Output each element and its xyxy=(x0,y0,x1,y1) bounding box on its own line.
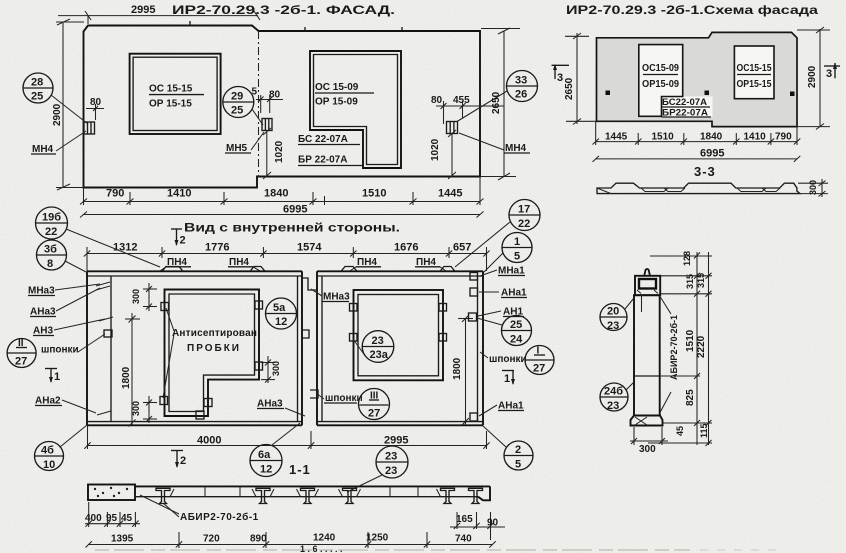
svg-text:27: 27 xyxy=(368,408,380,420)
svg-text:27: 27 xyxy=(533,363,545,375)
svg-text:2: 2 xyxy=(180,455,186,467)
svg-text:790: 790 xyxy=(106,188,124,200)
svg-text:шпонки: шпонки xyxy=(489,354,527,365)
svg-text:3: 3 xyxy=(557,72,563,84)
svg-text:шпонки: шпонки xyxy=(41,345,79,356)
svg-text:БС22-07А: БС22-07А xyxy=(662,97,708,107)
svg-text:2650: 2650 xyxy=(491,91,502,114)
svg-text:5: 5 xyxy=(515,459,521,471)
svg-text:1020: 1020 xyxy=(274,140,285,163)
svg-text:АБИР2-70-2б-1: АБИР2-70-2б-1 xyxy=(669,315,679,380)
svg-text:6а: 6а xyxy=(258,449,271,461)
svg-text:22: 22 xyxy=(45,226,57,238)
svg-text:1445: 1445 xyxy=(438,188,462,200)
svg-text:ОР15-15: ОР15-15 xyxy=(737,79,772,90)
svg-text:23а: 23а xyxy=(370,349,389,361)
svg-text:2220: 2220 xyxy=(696,335,707,358)
svg-text:4б: 4б xyxy=(41,445,54,457)
svg-text:128: 128 xyxy=(682,251,692,266)
svg-text:ОС 15-09: ОС 15-09 xyxy=(315,82,359,93)
svg-text:23: 23 xyxy=(372,335,384,347)
svg-text:1312: 1312 xyxy=(113,242,137,254)
svg-text:1676: 1676 xyxy=(394,242,418,254)
svg-text:165: 165 xyxy=(456,514,473,525)
svg-text:95: 95 xyxy=(106,513,118,524)
svg-text:ОР15-09: ОР15-09 xyxy=(642,79,679,90)
svg-text:3-3: 3-3 xyxy=(694,164,716,179)
svg-text:657: 657 xyxy=(453,242,471,254)
svg-text:1: 1 xyxy=(514,236,520,248)
svg-text:ПРОБКИ: ПРОБКИ xyxy=(187,343,241,354)
svg-text:БР 22-07А: БР 22-07А xyxy=(298,155,347,166)
svg-text:1 . 6 . .: 1 . 6 . . . . . xyxy=(300,544,343,553)
svg-text:5: 5 xyxy=(252,87,258,98)
svg-text:2900: 2900 xyxy=(807,65,818,88)
svg-text:45: 45 xyxy=(675,426,685,436)
svg-text:6995: 6995 xyxy=(700,148,724,160)
svg-text:300: 300 xyxy=(131,289,141,304)
svg-text:3б: 3б xyxy=(44,244,57,256)
svg-text:24б: 24б xyxy=(604,386,623,398)
svg-text:ОС15-15: ОС15-15 xyxy=(737,63,772,74)
svg-text:29: 29 xyxy=(231,91,243,103)
svg-text:5а: 5а xyxy=(273,302,286,314)
svg-text:1776: 1776 xyxy=(205,242,229,254)
svg-text:23: 23 xyxy=(607,400,619,412)
svg-text:45: 45 xyxy=(121,513,133,524)
svg-text:Антисептирован: Антисептирован xyxy=(172,328,257,339)
svg-text:80: 80 xyxy=(431,95,443,106)
svg-text:17: 17 xyxy=(518,204,530,216)
svg-text:300: 300 xyxy=(639,444,656,455)
svg-text:2: 2 xyxy=(180,235,186,247)
svg-text:1395: 1395 xyxy=(111,534,134,545)
svg-text:1020: 1020 xyxy=(430,138,441,161)
svg-text:ИР2-70.29.3 -2б-1.Схема фасада: ИР2-70.29.3 -2б-1.Схема фасада xyxy=(566,3,818,17)
svg-text:ИР2-70.29.3 -2б-1. ФАСАД.: ИР2-70.29.3 -2б-1. ФАСАД. xyxy=(172,3,395,17)
svg-text:315: 315 xyxy=(685,274,695,289)
svg-text:2: 2 xyxy=(515,444,521,456)
svg-text:455: 455 xyxy=(453,95,470,106)
svg-text:1: 1 xyxy=(504,373,510,385)
svg-text:6995: 6995 xyxy=(283,204,307,216)
svg-text:Вид с внутренней стороны.: Вид с внутренней стороны. xyxy=(184,221,400,235)
svg-text:25: 25 xyxy=(31,91,43,103)
svg-text:90: 90 xyxy=(487,518,499,529)
svg-text:23: 23 xyxy=(385,465,397,477)
svg-text:22: 22 xyxy=(518,218,530,230)
svg-text:12: 12 xyxy=(275,316,287,328)
svg-text:26: 26 xyxy=(515,89,527,101)
svg-text:2995: 2995 xyxy=(131,4,155,16)
svg-text:720: 720 xyxy=(203,534,220,545)
svg-text:1410: 1410 xyxy=(167,188,191,200)
svg-text:ОР 15-15: ОР 15-15 xyxy=(149,99,192,110)
svg-text:5: 5 xyxy=(514,251,520,263)
svg-text:300: 300 xyxy=(808,180,818,195)
svg-text:1800: 1800 xyxy=(121,366,132,389)
svg-text:19б: 19б xyxy=(42,212,61,224)
svg-text:825: 825 xyxy=(685,389,696,406)
svg-text:ОС 15-15: ОС 15-15 xyxy=(149,84,193,95)
svg-text:1445: 1445 xyxy=(605,132,628,143)
svg-text:3: 3 xyxy=(826,68,832,80)
svg-text:315: 315 xyxy=(696,273,706,288)
svg-text:740: 740 xyxy=(455,534,472,545)
svg-text:1510: 1510 xyxy=(362,188,386,200)
svg-text:890: 890 xyxy=(250,534,267,545)
svg-text:АБИР2-70-2б-1: АБИР2-70-2б-1 xyxy=(180,511,259,523)
svg-text:8: 8 xyxy=(47,258,53,270)
svg-text:25: 25 xyxy=(510,319,522,331)
svg-text:28: 28 xyxy=(31,77,43,89)
svg-text:400: 400 xyxy=(85,513,102,524)
svg-text:2900: 2900 xyxy=(52,103,63,126)
svg-text:115: 115 xyxy=(699,423,709,438)
svg-text:24: 24 xyxy=(510,334,523,346)
svg-text:1800: 1800 xyxy=(452,357,463,380)
svg-text:ОР 15-09: ОР 15-09 xyxy=(315,97,358,108)
svg-text:1840: 1840 xyxy=(264,188,288,200)
svg-text:25: 25 xyxy=(231,105,243,117)
svg-text:12: 12 xyxy=(260,464,272,476)
svg-text:20: 20 xyxy=(607,306,619,318)
svg-text:1510: 1510 xyxy=(652,132,675,143)
svg-text:300: 300 xyxy=(271,361,281,376)
svg-text:27: 27 xyxy=(15,356,27,368)
svg-text:1574: 1574 xyxy=(297,242,322,254)
svg-text:1250: 1250 xyxy=(366,533,389,544)
svg-text:1410: 1410 xyxy=(744,132,767,143)
svg-text:790: 790 xyxy=(775,132,792,143)
svg-text:1840: 1840 xyxy=(700,132,723,143)
svg-text:23: 23 xyxy=(607,320,619,332)
svg-text:2995: 2995 xyxy=(384,435,408,447)
svg-text:1240: 1240 xyxy=(313,533,336,544)
svg-text:БР22-07А: БР22-07А xyxy=(662,108,709,118)
svg-text:1-1: 1-1 xyxy=(289,462,311,477)
svg-text:ОС15-09: ОС15-09 xyxy=(642,63,679,74)
svg-text:4000: 4000 xyxy=(197,435,221,447)
svg-text:2650: 2650 xyxy=(564,77,575,100)
svg-text:23: 23 xyxy=(385,451,397,463)
svg-text:БС 22-07А: БС 22-07А xyxy=(298,134,348,145)
svg-text:1510: 1510 xyxy=(685,329,696,352)
svg-text:10: 10 xyxy=(43,459,55,471)
svg-text:1: 1 xyxy=(54,371,60,383)
svg-text:33: 33 xyxy=(515,75,527,87)
